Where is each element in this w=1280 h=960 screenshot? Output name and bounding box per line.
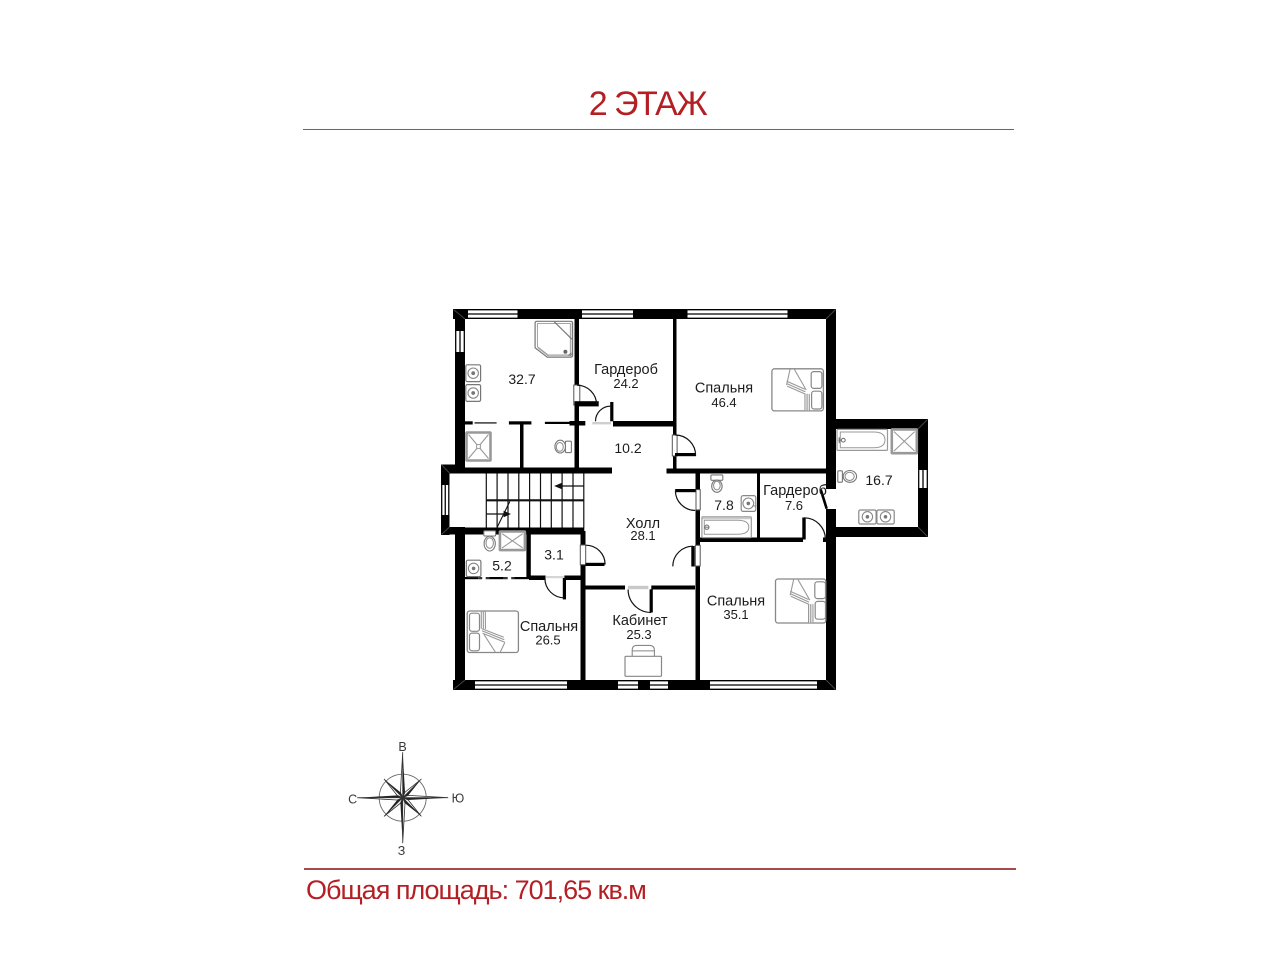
svg-text:35.1: 35.1 [723,607,748,622]
svg-text:Ю: Ю [452,792,465,806]
svg-text:Гардероб: Гардероб [763,483,827,499]
svg-text:26.5: 26.5 [535,633,560,648]
svg-text:28.1: 28.1 [630,528,655,543]
svg-text:В: В [398,740,406,754]
svg-text:24.2: 24.2 [613,376,638,391]
svg-text:5.2: 5.2 [492,558,512,574]
svg-text:32.7: 32.7 [508,371,535,387]
svg-text:З: З [398,844,406,858]
svg-text:25.3: 25.3 [626,627,651,642]
svg-text:С: С [348,792,357,806]
svg-text:7.6: 7.6 [785,498,803,513]
svg-text:3.1: 3.1 [544,547,564,563]
svg-text:10.2: 10.2 [614,440,641,456]
svg-text:16.7: 16.7 [865,472,892,488]
svg-text:46.4: 46.4 [711,395,736,410]
svg-text:7.8: 7.8 [714,497,734,513]
